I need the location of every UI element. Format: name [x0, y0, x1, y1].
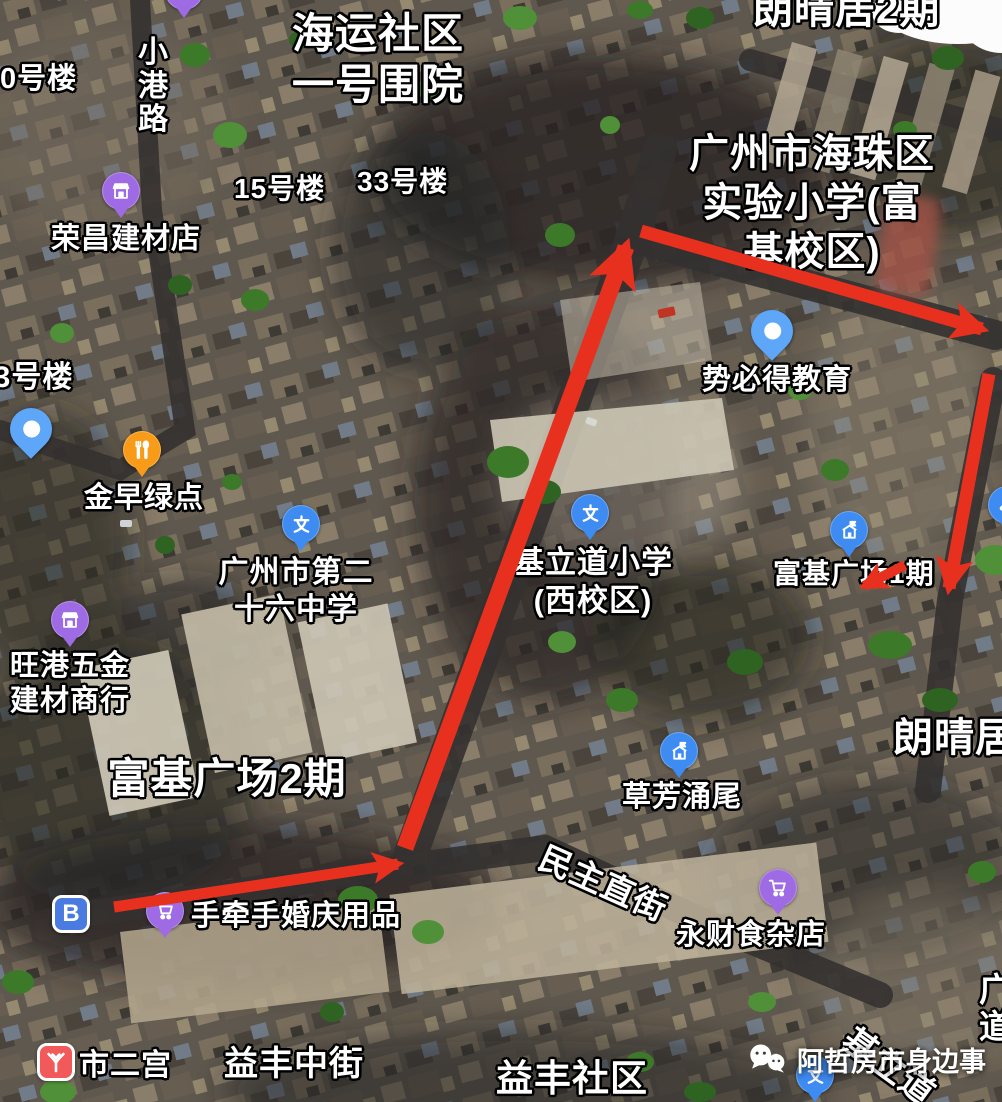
- restaurant-icon: [131, 439, 153, 461]
- pin-fuji-phase1[interactable]: [830, 511, 868, 549]
- watermark-text: 阿哲房市身边事: [797, 1040, 986, 1079]
- area-langqingju-right: 朗晴居2期: [893, 714, 1002, 763]
- wechat-icon: [748, 1043, 788, 1076]
- building-icon: [668, 740, 691, 763]
- cart-icon: [154, 900, 176, 922]
- area-haiyun-shequ: 海运社区一号围院: [292, 8, 464, 110]
- store-icon: [110, 180, 132, 202]
- pin-shouqianshou-cart[interactable]: [146, 892, 184, 930]
- pin-top-edge[interactable]: [165, 0, 203, 10]
- badge-b[interactable]: B: [52, 895, 90, 933]
- satellite-map-canvas[interactable]: 阿哲房市身边事 0号楼小港路海运社区一号围院朗晴居2期15号楼33号楼广州市海珠…: [0, 0, 1002, 1102]
- pin-yongcai-cart[interactable]: [759, 869, 797, 907]
- building-15: 15号楼: [234, 172, 325, 206]
- wrench-icon: [996, 494, 1002, 516]
- poi-di26-zhongxue[interactable]: 广州市第二十六中学: [219, 555, 374, 628]
- pin-rongchang-store[interactable]: [102, 172, 140, 210]
- poi-shiergong[interactable]: 市二宫: [79, 1048, 172, 1085]
- education-icon: [290, 513, 313, 536]
- building-33: 33号楼: [357, 165, 448, 199]
- poi-yongcai-shizadian[interactable]: 永财食杂店: [676, 918, 826, 953]
- pin-wanggang-store[interactable]: [51, 601, 89, 639]
- location-dot-icon: [764, 323, 781, 340]
- poi-caofang-yongwei[interactable]: 草芳涌尾: [622, 780, 742, 815]
- poi-wanggang-wujin[interactable]: 旺港五金建材商行: [10, 649, 130, 720]
- area-yifeng-shequ: 益丰社区: [496, 1056, 648, 1101]
- building-icon: [838, 519, 861, 542]
- street-xiaogang-lu: 小港路: [138, 36, 169, 137]
- building-0: 0号楼: [0, 62, 77, 97]
- poi-shouqianshou-hunqing[interactable]: 手牵手婚庆用品: [191, 899, 401, 934]
- area-fuji-2qi: 富基广场2期: [107, 753, 346, 804]
- education-icon: [579, 502, 602, 525]
- pin-jinzao-restaurant[interactable]: [123, 431, 161, 469]
- store-icon: [59, 609, 81, 631]
- pin-left-location[interactable]: [10, 408, 52, 450]
- metro-icon: [44, 1050, 68, 1074]
- location-dot-icon: [23, 421, 40, 438]
- area-shiyan-xiaoxue: 广州市海珠区实验小学(富基校区): [689, 130, 935, 276]
- area-langqingju-2qi-top: 朗晴居2期: [753, 0, 940, 35]
- badge-metro-shiergong[interactable]: [37, 1043, 75, 1081]
- watermark: 阿哲房市身边事: [748, 1040, 986, 1079]
- poi-shibide-jiaoyu[interactable]: 势必得教育: [702, 363, 852, 398]
- street-guang-dao: 广道: [979, 972, 1002, 1046]
- poi-rongchang-jiancai[interactable]: 荣昌建材店: [51, 222, 201, 257]
- poi-fuji-1qi[interactable]: 富基广场1期: [773, 557, 935, 591]
- pin-wrench[interactable]: [988, 486, 1002, 524]
- poi-jilidao-xiaoxue[interactable]: 基立道小学(西校区): [513, 544, 673, 620]
- building-83: 83号楼: [0, 360, 73, 397]
- street-yifeng-zhongjie: 益丰中街: [224, 1044, 364, 1085]
- cart-icon: [767, 877, 789, 899]
- pin-shibide-location[interactable]: [751, 310, 793, 352]
- poi-jinzao-lvdian[interactable]: 金早绿点: [84, 481, 204, 516]
- pin-caofang[interactable]: [660, 732, 698, 770]
- pin-di26-school[interactable]: [282, 505, 320, 543]
- letter-b-icon: B: [62, 900, 79, 928]
- pin-jilidao-school[interactable]: [571, 494, 609, 532]
